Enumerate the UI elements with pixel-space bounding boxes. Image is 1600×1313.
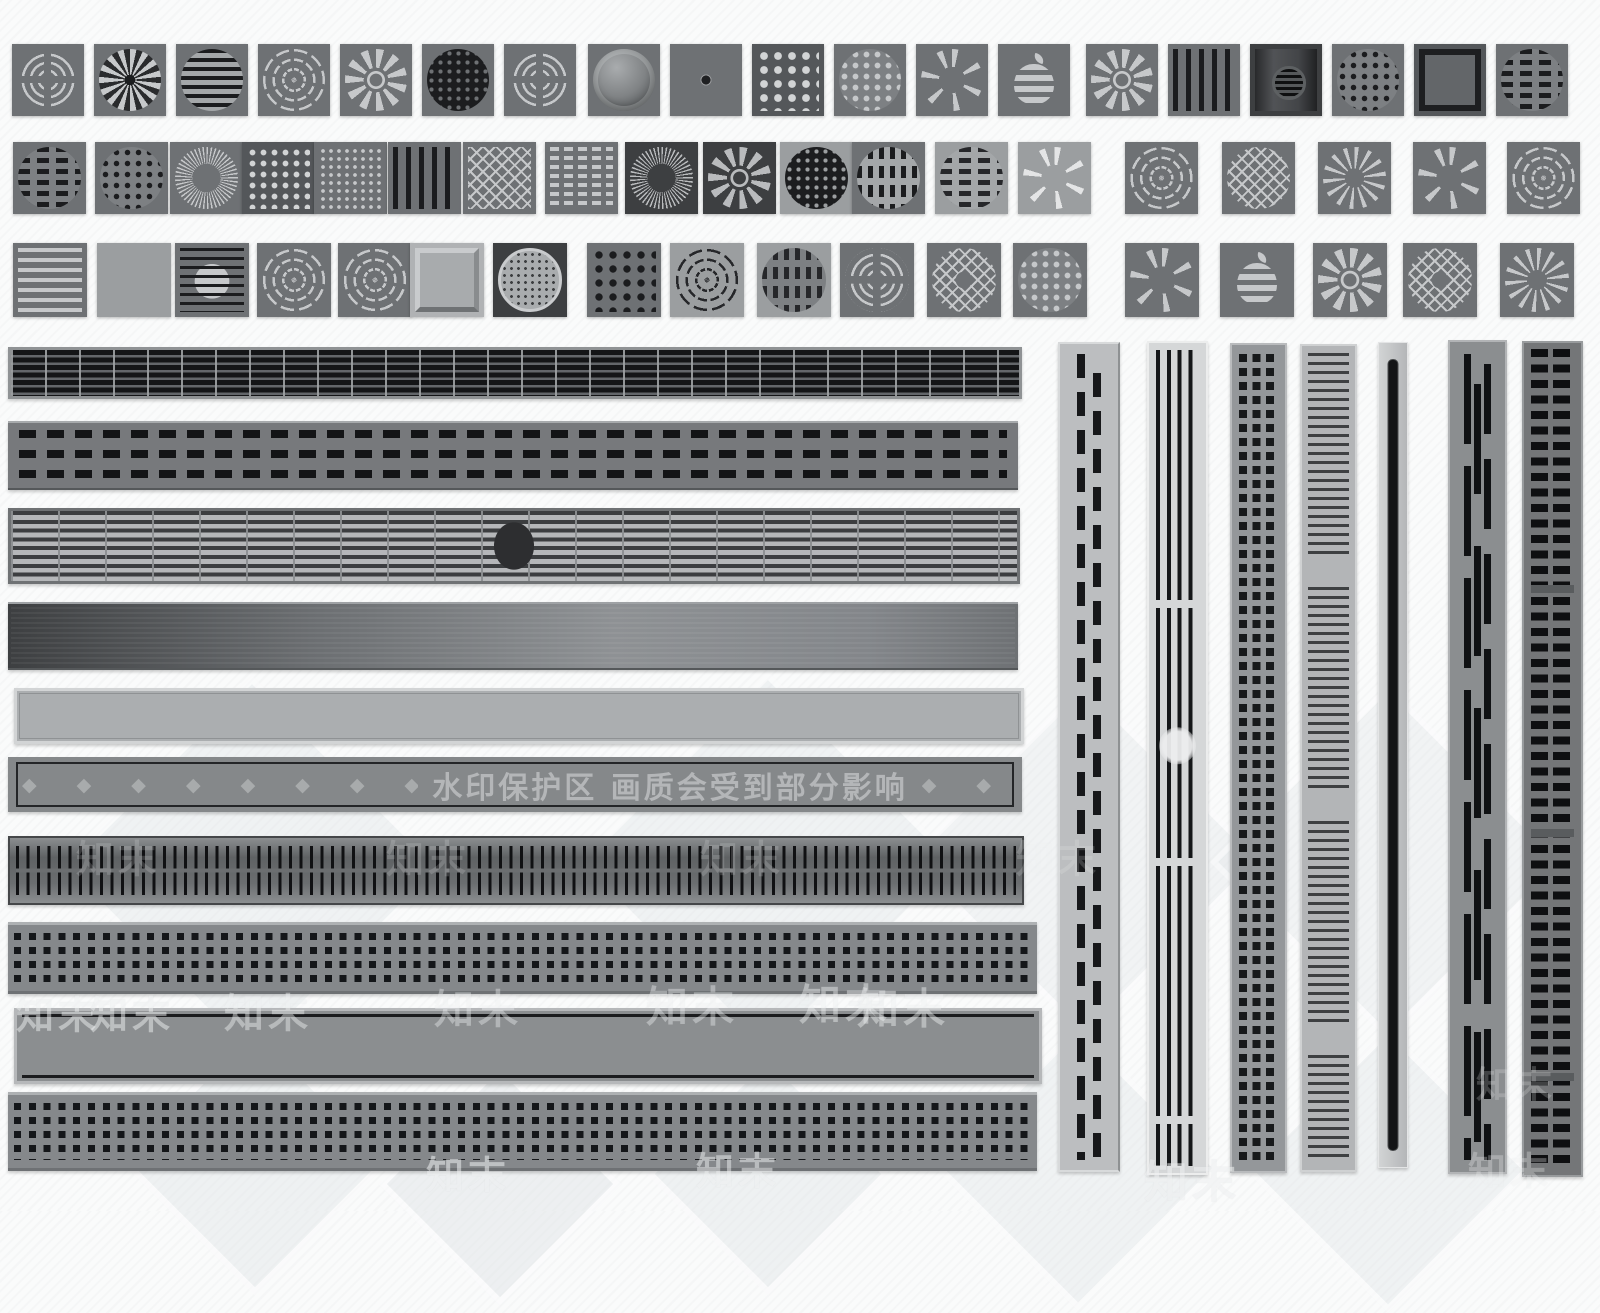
brand-watermark-text: 知末 xyxy=(696,1141,780,1196)
brand-watermark-text: 知末 xyxy=(386,829,470,884)
brand-watermark-text: 知末 xyxy=(90,985,174,1040)
brand-watermark-text: 知末 xyxy=(1468,1141,1552,1196)
brand-watermark-text: 知末 xyxy=(224,981,312,1039)
brand-watermark-text: 知末 xyxy=(646,974,738,1035)
brand-watermark-text: 知末 xyxy=(434,977,522,1035)
brand-watermark-text: 知末 xyxy=(76,829,160,884)
brand-watermark-text: 知末 xyxy=(700,829,784,884)
drain-asset-sheet: { "watermark": { "protect_text": "水印保护区 … xyxy=(0,0,1600,1211)
brand-watermark-text: 知末 xyxy=(857,976,949,1037)
brand-watermark-text: 知末 xyxy=(1016,829,1100,884)
brand-marks-layer: 知末知末知末知末知末知末知末知末知末知末知末知末知末知末知末知末 xyxy=(0,0,1600,1211)
brand-watermark-text: 知末 xyxy=(1144,1146,1240,1210)
brand-watermark-text: 知末 xyxy=(16,985,100,1040)
brand-watermark-text: 知末 xyxy=(426,1145,510,1200)
brand-watermark-text: 知末 xyxy=(1476,1056,1556,1108)
